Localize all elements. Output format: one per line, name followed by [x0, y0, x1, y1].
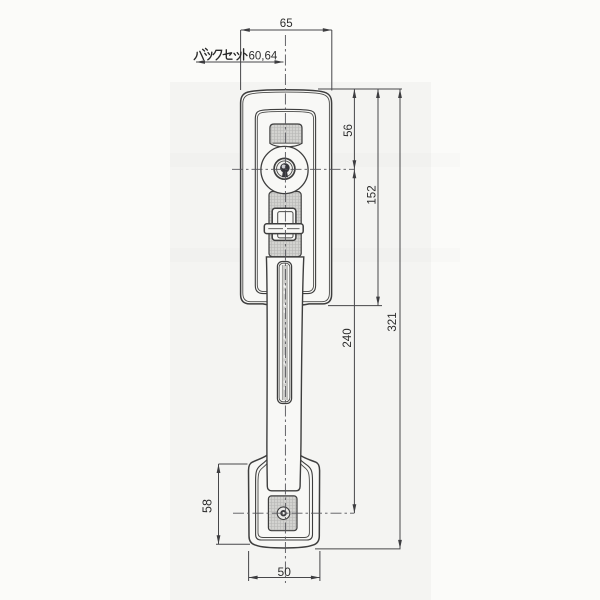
- svg-text:60,64: 60,64: [249, 51, 278, 63]
- svg-text:56: 56: [343, 124, 355, 137]
- svg-text:50: 50: [278, 565, 292, 579]
- svg-text:58: 58: [201, 499, 215, 513]
- svg-text:65: 65: [280, 18, 293, 30]
- svg-text:321: 321: [387, 312, 399, 331]
- svg-text:240: 240: [342, 328, 354, 347]
- svg-text:152: 152: [367, 185, 379, 204]
